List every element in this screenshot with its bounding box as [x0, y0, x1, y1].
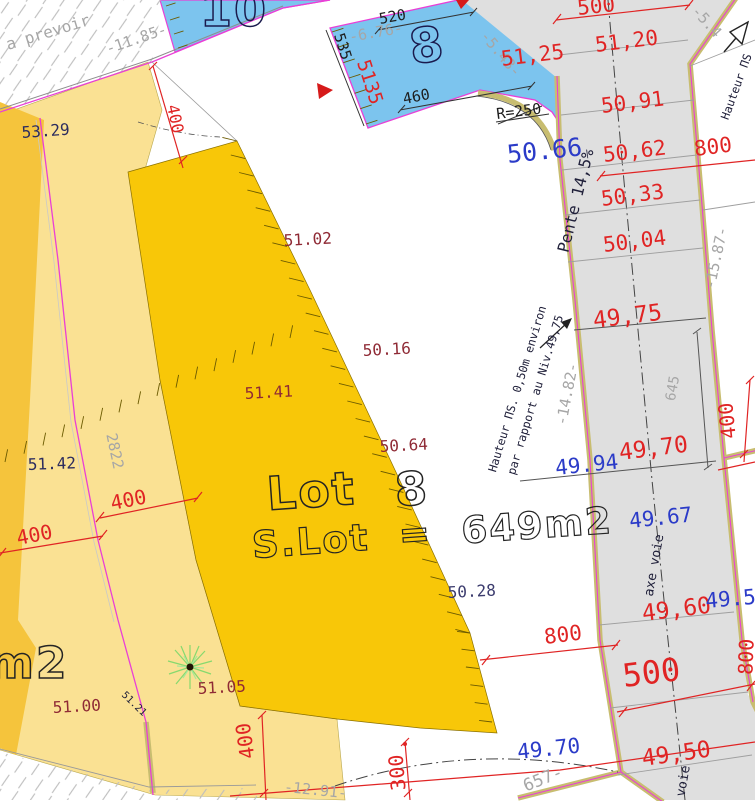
dim-800-right-partial: 800 — [733, 638, 755, 675]
red-triangle-marker — [317, 83, 333, 99]
dim-800-mid: 800 — [543, 621, 584, 649]
spot-5142: 51.42 — [27, 453, 76, 474]
dim-400-bottom: 400 — [231, 721, 260, 760]
dim-400-top: 400 — [163, 103, 188, 135]
spot-5102: 51.02 — [283, 228, 332, 249]
plan-canvas: 10a prevoir-11.85-53.294005355135520-6.7… — [0, 0, 755, 801]
spot-5064: 50.64 — [379, 434, 428, 455]
spot-5016: 50.16 — [362, 338, 411, 359]
side-line-right-2 — [703, 202, 755, 210]
spot-5105: 51.05 — [197, 676, 246, 697]
spot-495-partial: 49.5 — [704, 585, 755, 613]
spot-5141: 51.41 — [244, 381, 293, 402]
site-plan-viewport: 10a prevoir-11.85-53.294005355135520-6.7… — [0, 0, 755, 801]
lot8-label-word: Lot — [265, 461, 357, 521]
arc-tick-point — [403, 742, 407, 746]
dim-500-bottom: 500 — [620, 650, 682, 695]
dim-400-right: 400 — [713, 402, 741, 440]
dim-800-topright: 800 — [693, 133, 734, 161]
lot10-number: 10 — [200, 0, 268, 37]
dim-300: 300 — [383, 754, 410, 792]
dim-1482: -14.82- — [552, 361, 582, 426]
adjacent-lot-area-partial: m2 — [0, 638, 68, 689]
spot-4970-bottom: 49.70 — [516, 733, 581, 763]
spot-5028: 50.28 — [447, 580, 496, 601]
spot-5100: 51.00 — [52, 695, 101, 716]
note-hauteur-right-partial: Hauteur ΠS — [718, 52, 755, 122]
lot8-label-number: 8 — [393, 461, 431, 517]
spot-5329: 53.29 — [21, 120, 70, 142]
